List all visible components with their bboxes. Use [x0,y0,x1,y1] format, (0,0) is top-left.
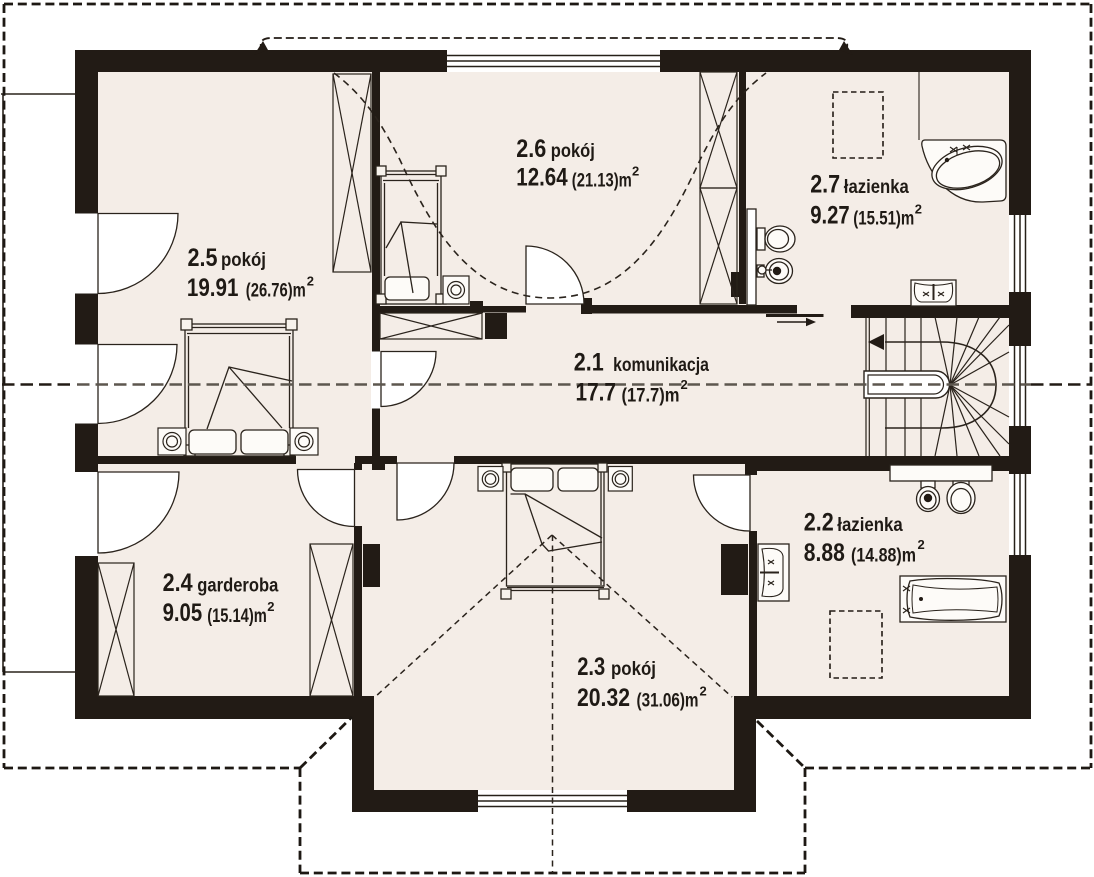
svg-text:2.5: 2.5 [188,244,218,272]
svg-text:9.27: 9.27 [810,202,850,230]
svg-text:17.7: 17.7 [576,379,617,407]
svg-text:2: 2 [307,273,314,288]
svg-text:19.91: 19.91 [187,274,239,302]
svg-text:(26.76)m: (26.76)m [246,279,306,301]
svg-text:9.05: 9.05 [163,599,203,627]
svg-text:(14.88)m: (14.88)m [851,545,916,567]
svg-text:garderoba: garderoba [197,575,278,597]
svg-text:2: 2 [915,202,922,217]
svg-text:(15.14)m: (15.14)m [207,605,267,627]
svg-text:komunikacja: komunikacja [613,354,709,376]
svg-text:2.6: 2.6 [516,135,546,163]
svg-text:20.32: 20.32 [577,684,630,712]
svg-text:2: 2 [918,537,925,552]
svg-text:2.1: 2.1 [574,349,604,377]
svg-text:(15.51)m: (15.51)m [853,208,914,230]
svg-text:pokój: pokój [221,249,266,271]
svg-text:(17.7)m: (17.7)m [622,385,680,407]
svg-text:8.88: 8.88 [804,539,845,567]
svg-text:2.3: 2.3 [577,653,605,681]
svg-text:(21.13)m: (21.13)m [572,170,632,192]
svg-text:(31.06)m: (31.06)m [637,690,699,712]
svg-text:12.64: 12.64 [516,164,567,192]
svg-text:2.4: 2.4 [163,569,193,597]
svg-text:2: 2 [267,599,274,614]
svg-text:łazienka: łazienka [844,176,909,198]
svg-text:pokój: pokój [551,140,595,162]
svg-text:2: 2 [700,684,707,699]
svg-text:2.2: 2.2 [804,509,834,537]
svg-text:2: 2 [681,377,688,392]
svg-text:2.7: 2.7 [810,171,840,199]
svg-text:2: 2 [632,164,639,179]
svg-text:łazienka: łazienka [837,514,903,536]
svg-text:pokój: pokój [611,658,656,680]
